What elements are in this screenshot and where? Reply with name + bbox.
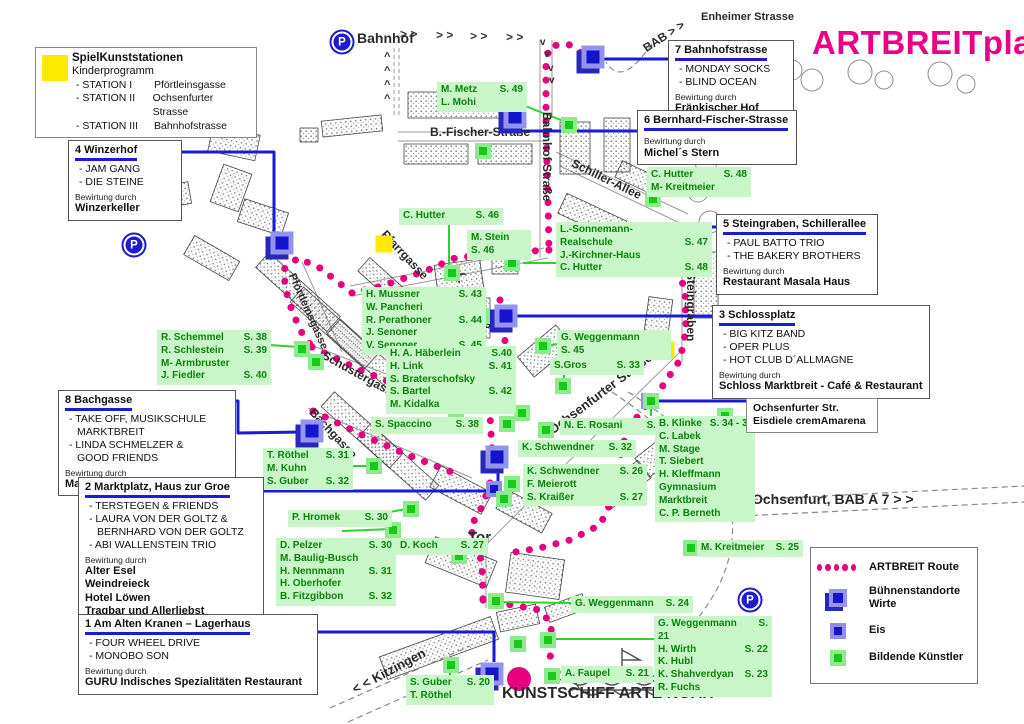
- artist-line: Marktbreit: [659, 495, 751, 508]
- act-name: - JAM GANG: [75, 163, 175, 176]
- artist-line: S. KraißerS. 27: [527, 492, 643, 505]
- artist-page-ref: S. 32: [369, 591, 392, 604]
- stations-title-rest: Kinderprogramm: [72, 65, 154, 77]
- artist-line: R. Fuchs: [658, 682, 768, 695]
- act-name: - TAKE OFF, MUSIKSCHULE: [65, 413, 229, 426]
- host-name: Alter Esel: [85, 565, 257, 578]
- artist-line: S.GrosS. 33: [554, 360, 640, 373]
- stations-title-bold: SpielKunststationen: [72, 52, 183, 64]
- artist-name: M- Kreitmeier: [651, 182, 715, 195]
- artist-label: R. SchemmelS. 38R. SchlesteinS. 39M- Arm…: [157, 330, 271, 385]
- artist-name: H. Kleffmann: [659, 469, 721, 482]
- artist-line: H. WirthS. 22: [658, 644, 768, 657]
- artist-name: P. Hromek: [292, 512, 340, 525]
- artist-line: G. WeggenmannS.: [658, 618, 768, 631]
- arrow-glyph: > >: [470, 30, 487, 42]
- artist-name: M. Stein: [471, 232, 509, 245]
- act-name: - TERSTEGEN & FRIENDS: [85, 500, 257, 513]
- artist-page-ref: S. 27: [620, 492, 643, 505]
- station-marker: [376, 236, 393, 253]
- act-name: - HOT CLUB D´ALLMAGNE: [719, 354, 923, 367]
- legend-route-label: ARTBREIT Route: [869, 561, 959, 574]
- arrow-glyph: ^: [384, 94, 390, 105]
- artist-name: J. Senoner: [366, 327, 417, 340]
- artist-name: R. Perathoner: [366, 315, 432, 328]
- artist-line: H. NennmannS. 31: [280, 566, 392, 579]
- station-yellow-icon: [42, 55, 68, 81]
- artist-line: D. KochS. 27: [400, 540, 484, 553]
- artist-line: L. Mohi: [441, 97, 523, 110]
- stations-title: SpielKunststationen Kinderprogramm: [72, 51, 250, 79]
- artist-page-ref: S. 43: [459, 289, 482, 302]
- artist-page-ref: S. 20: [467, 677, 490, 690]
- act-name: - BIG KITZ BAND: [719, 328, 923, 341]
- street-label: Steingraben: [685, 272, 697, 341]
- arrow-glyph: v: [540, 38, 546, 48]
- bewirtung-label: Bewirtung durch: [719, 370, 923, 380]
- artist-name: M. Kuhn: [267, 463, 306, 476]
- eis-marker-icon: [817, 623, 859, 639]
- artist-marker: [496, 491, 512, 507]
- artist-line: M- Kreitmeier: [651, 182, 747, 195]
- arrow-glyph: > >: [436, 29, 453, 41]
- artist-page-ref: S. 41: [489, 361, 512, 374]
- act-name: - THE BAKERY BROTHERS: [723, 250, 871, 263]
- artist-name: K. Schwendner: [522, 442, 594, 455]
- act-name: MARKTBREIT: [65, 426, 229, 439]
- artist-name: M. Baulig-Busch: [280, 553, 358, 566]
- artist-line: J.-Kirchner-Haus: [560, 250, 708, 263]
- artist-line: S. BartelS. 42: [390, 386, 512, 399]
- bewirtung-label: Bewirtung durch: [644, 136, 790, 146]
- artist-page-ref: S. 48: [685, 262, 708, 275]
- artist-line: S. GuberS. 20: [410, 677, 490, 690]
- info-box-title: 3 Schlossplatz: [719, 309, 795, 326]
- artist-name: S. Kraißer: [527, 492, 574, 505]
- artist-page-ref: S. 21: [626, 668, 649, 681]
- artist-name: S. 45: [561, 345, 584, 358]
- artist-page-ref: S. 38: [244, 332, 267, 345]
- artist-marker: [514, 405, 530, 421]
- artist-marker: [555, 378, 571, 394]
- stage-marker: [486, 446, 509, 469]
- artist-page-ref: S. 30: [365, 512, 388, 525]
- artist-label: C. HutterS. 46: [399, 208, 503, 225]
- artist-marker: [366, 458, 382, 474]
- artist-name: C. Hutter: [560, 262, 602, 275]
- arrow-glyph: v: [544, 50, 550, 60]
- artist-line: H. MussnerS. 43: [366, 289, 482, 302]
- artist-marker: [475, 143, 491, 159]
- artist-name: L. Mohi: [441, 97, 476, 110]
- artist-line: A. FaupelS. 21: [565, 668, 649, 681]
- artist-page-ref: S. 49: [500, 84, 523, 97]
- artist-name: A. Faupel: [565, 668, 610, 681]
- artist-line: M. Kuhn: [267, 463, 349, 476]
- green-connector-line: [497, 602, 571, 603]
- artist-page-ref: S. 44: [459, 315, 482, 328]
- info-box-5: 5 Steingraben, Schillerallee- PAUL BATTO…: [716, 214, 878, 295]
- page-title: ARTBREITplan: [812, 24, 1024, 62]
- artist-line: RealschuleS. 47: [560, 237, 708, 250]
- artist-label: M. SteinS. 46: [467, 230, 531, 260]
- artist-marker: [499, 416, 515, 432]
- arrow-glyph: > >: [400, 28, 417, 40]
- stage-marker: [301, 420, 324, 443]
- info-box-4: 4 Winzerhof- JAM GANG- DIE STEINEBewirtu…: [68, 140, 182, 221]
- artist-name: H. Mussner: [366, 289, 420, 302]
- artist-name: C. Hutter: [403, 210, 445, 223]
- artist-name: H. Oberhofer: [280, 578, 341, 591]
- artist-page-ref: S. 38: [456, 419, 479, 432]
- artist-line: K. Hubl: [658, 656, 768, 669]
- artist-page-ref: S. 47: [685, 237, 708, 250]
- artist-line: R. SchlesteinS. 39: [161, 345, 267, 358]
- artist-label: D. KochS. 27: [396, 538, 488, 555]
- artist-line: G. Weggenmann: [561, 332, 667, 345]
- info-box-title: 4 Winzerhof: [75, 144, 137, 161]
- artist-marker: [544, 668, 560, 684]
- artist-line: K. ShahverdyanS. 23: [658, 669, 768, 682]
- info-box-6: 6 Bernhard-Fischer-StrasseBewirtung durc…: [637, 110, 797, 165]
- artist-line: 21: [658, 631, 768, 644]
- artist-line: S. SpaccinoS. 38: [375, 419, 479, 432]
- act-name: GOOD FRIENDS: [65, 452, 229, 465]
- artist-marker-icon: [817, 650, 859, 666]
- act-name: - MONOBO SON: [85, 650, 311, 663]
- street-label: Bahnhof Straße: [541, 112, 553, 201]
- artist-name: S. Guber: [267, 476, 309, 489]
- act-name: - LAURA VON DER GOLTZ &: [85, 513, 257, 526]
- blue-connector-line: [517, 124, 637, 131]
- stage-marker: [582, 46, 605, 69]
- artist-name: D. Pelzer: [280, 540, 322, 553]
- artist-name: G. Weggenmann: [561, 332, 640, 345]
- artist-label: C. HutterS. 48M- Kreitmeier: [647, 167, 751, 197]
- artist-marker: [488, 593, 504, 609]
- station-row: - STATION IIOchsenfurter Strasse: [76, 92, 250, 119]
- act-name: BERNHARD VON DER GOLTZ: [85, 526, 257, 539]
- artist-line: C. HutterS. 46: [403, 210, 499, 223]
- info-box-1: 1 Am Alten Kranen – Lagerhaus- FOUR WHEE…: [78, 614, 318, 695]
- bewirtung-label: Bewirtung durch: [675, 92, 787, 102]
- artist-line: B. FitzgibbonS. 32: [280, 591, 392, 604]
- artist-line: G. WeggenmannS. 24: [575, 598, 689, 611]
- artist-label: S. SpaccinoS. 38: [371, 417, 483, 434]
- parking-icon: P: [332, 32, 353, 53]
- stations-legend-box: SpielKunststationen Kinderprogramm - STA…: [35, 47, 257, 138]
- artist-label: A. FaupelS. 21: [561, 666, 653, 683]
- arrow-glyph: > >: [506, 31, 523, 43]
- artist-name: M. Kidalka: [390, 399, 439, 412]
- host-name: Hotel Löwen: [85, 592, 257, 605]
- artist-line: K. SchwendnerS. 32: [522, 442, 632, 455]
- artist-marker: [444, 265, 460, 281]
- artist-page-ref: S. 31: [326, 450, 349, 463]
- artist-page-ref: S. 30: [369, 540, 392, 553]
- bewirtung-label: Bewirtung durch: [85, 555, 257, 565]
- artist-page-ref: S.: [759, 618, 768, 631]
- artist-line: M. KreitmeierS. 25: [701, 542, 799, 555]
- artist-line: S. 45: [561, 345, 667, 358]
- artist-label: K. SchwendnerS. 26F. MeierottS. KraißerS…: [523, 464, 647, 506]
- artist-name: R. Schlestein: [161, 345, 224, 358]
- artist-line: S. 46: [471, 245, 527, 258]
- legend-route-row: ARTBREIT Route: [817, 561, 971, 574]
- artist-label: B. KlinkeS. 34 - 37C. LabekM. StageT. Si…: [655, 416, 755, 522]
- artist-name: Marktbreit: [659, 495, 707, 508]
- act-name: - ABI WALLENSTEIN TRIO: [85, 539, 257, 552]
- street-label: Ochsenfurt, BAB A 7 > >: [752, 492, 914, 506]
- artist-name: H. Nennmann: [280, 566, 344, 579]
- artist-name: C. Hutter: [651, 169, 693, 182]
- artist-name: T. Röthel: [410, 690, 452, 703]
- artist-line: D. PelzerS. 30: [280, 540, 392, 553]
- artist-line: T. Siebert: [659, 456, 751, 469]
- artist-marker: [561, 117, 577, 133]
- artist-page-ref: S. 22: [745, 644, 768, 657]
- artist-page-ref: S.40: [491, 348, 512, 361]
- artist-page-ref: S. 33: [617, 360, 640, 373]
- artist-line: H. Kleffmann: [659, 469, 751, 482]
- artist-name: M. Kreitmeier: [701, 542, 764, 555]
- artist-line: C. HutterS. 48: [560, 262, 708, 275]
- host-name: Weindreieck: [85, 578, 257, 591]
- artist-line: R. PerathonerS. 44: [366, 315, 482, 328]
- artist-page-ref: S. 42: [489, 386, 512, 399]
- artist-line: K. SchwendnerS. 26: [527, 466, 643, 479]
- artist-line: M- Armbruster: [161, 358, 267, 371]
- artist-line: R. SchemmelS. 38: [161, 332, 267, 345]
- artist-label: G. WeggenmannS.21H. WirthS. 22K. HublK. …: [654, 616, 772, 697]
- artist-name: B. Klinke: [659, 418, 702, 431]
- arrow-glyph: v: [549, 76, 555, 86]
- artist-page-ref: S. 25: [776, 542, 799, 555]
- artist-name: D. Koch: [400, 540, 438, 553]
- stage-marker-icon: [817, 589, 859, 607]
- artist-name: M- Armbruster: [161, 358, 230, 371]
- artist-name: J. Fiedler: [161, 370, 205, 383]
- artist-label: K. SchwendnerS. 32: [518, 440, 636, 457]
- artist-line: M. Stein: [471, 232, 527, 245]
- parking-icon: P: [740, 590, 761, 611]
- artist-name: R. Schemmel: [161, 332, 224, 345]
- artist-name: S. Bartel: [390, 386, 431, 399]
- host-name: Winzerkeller: [75, 202, 175, 215]
- artist-line: L.-Sonnemann-: [560, 224, 708, 237]
- artist-line: C. Labek: [659, 431, 751, 444]
- artist-page-ref: S. 48: [724, 169, 747, 182]
- artist-label: G. WeggenmannS. 45: [557, 330, 671, 360]
- artist-name: S. Guber: [410, 677, 452, 690]
- stage-marker: [271, 232, 294, 255]
- artist-page-ref: S. 27: [461, 540, 484, 553]
- parking-icon: P: [124, 235, 145, 256]
- street-label: Enheimer Strasse: [701, 12, 794, 23]
- artist-page-ref: S. 40: [244, 370, 267, 383]
- artist-line: F. Meierott: [527, 479, 643, 492]
- artist-line: C. P. Berneth: [659, 508, 751, 521]
- artist-name: J.-Kirchner-Haus: [560, 250, 641, 263]
- artist-marker: [540, 632, 556, 648]
- artist-name: C. Labek: [659, 431, 701, 444]
- artist-line: J. Senoner: [366, 327, 482, 340]
- artist-name: Gymnasium: [659, 482, 716, 495]
- station-row-cell: - STATION II: [76, 92, 153, 119]
- legend-eis-label: Eis: [869, 624, 886, 637]
- act-name: - MONDAY SOCKS: [675, 63, 787, 76]
- act-name: - BLIND OCEAN: [675, 76, 787, 89]
- artist-line: C. HutterS. 48: [651, 169, 747, 182]
- artist-line: S. Braterschofsky: [390, 374, 512, 387]
- artist-line: H. Oberhofer: [280, 578, 392, 591]
- artist-name: T. Siebert: [659, 456, 703, 469]
- artist-line: Gymnasium: [659, 482, 751, 495]
- artist-name: B. Fitzgibbon: [280, 591, 343, 604]
- artist-marker: [538, 422, 554, 438]
- artist-label: G. WeggenmannS. 24: [571, 596, 693, 613]
- artist-name: W. Pancheri: [366, 302, 423, 315]
- artist-label: S.GrosS. 33: [550, 358, 644, 375]
- host-name: Schloss Marktbreit - Café & Restaurant: [719, 380, 923, 393]
- artist-name: 21: [658, 631, 669, 644]
- bewirtung-label: Bewirtung durch: [723, 266, 871, 276]
- host-name: GURU Indisches Spezialitäten Restaurant: [85, 676, 311, 689]
- artist-name: L.-Sonnemann-: [560, 224, 633, 237]
- artist-label: H. A. HäberleinS.40H. LinkS. 41S. Brater…: [386, 346, 516, 414]
- info-box-title: 1 Am Alten Kranen – Lagerhaus: [85, 618, 250, 635]
- bewirtung-label: Bewirtung durch: [75, 192, 175, 202]
- artist-name: S.Gros: [554, 360, 587, 373]
- artist-label: P. HromekS. 30: [288, 510, 392, 527]
- artist-name: S. Braterschofsky: [390, 374, 475, 387]
- artist-label: M. MetzS. 49L. Mohi: [437, 82, 527, 112]
- artist-page-ref: S. 31: [369, 566, 392, 579]
- artist-line: H. A. HäberleinS.40: [390, 348, 512, 361]
- artist-label: D. PelzerS. 30M. Baulig-BuschH. Nennmann…: [276, 538, 396, 606]
- artist-line: B. KlinkeS. 34 - 37: [659, 418, 751, 431]
- artist-page-ref: S. 32: [609, 442, 632, 455]
- artist-name: C. P. Berneth: [659, 508, 721, 521]
- info-box-title: 7 Bahnhofstrasse: [675, 44, 767, 61]
- artist-name: K. Shahverdyan: [658, 669, 734, 682]
- station-row-cell: - STATION I: [76, 79, 154, 93]
- artist-marker: [403, 501, 419, 517]
- artist-name: H. A. Häberlein: [390, 348, 461, 361]
- station-row-cell: Ochsenfurter Strasse: [153, 92, 250, 119]
- info-box-title: 6 Bernhard-Fischer-Strasse: [644, 114, 788, 131]
- info-box-2: 2 Marktplatz, Haus zur Groe- TERSTEGEN &…: [78, 477, 264, 624]
- host-name: Michel´s Stern: [644, 147, 790, 160]
- artist-page-ref: S. 32: [326, 476, 349, 489]
- arrow-glyph: v: [548, 64, 554, 74]
- bewirtung-label: Bewirtung durch: [85, 666, 311, 676]
- artist-line: T. RöthelS. 31: [267, 450, 349, 463]
- artist-name: F. Meierott: [527, 479, 576, 492]
- artist-line: M. MetzS. 49: [441, 84, 523, 97]
- station-row: - STATION IPförtleinsgasse: [76, 79, 250, 93]
- artist-name: G. Weggenmann: [575, 598, 654, 611]
- legend-stage-label: Bühnenstandorte Wirte: [869, 585, 960, 611]
- stations-rows: - STATION IPförtleinsgasse- STATION IIOc…: [42, 79, 250, 134]
- artist-line: M. Kidalka: [390, 399, 512, 412]
- legend-stage-row: Bühnenstandorte Wirte: [817, 585, 971, 611]
- legend-eis-row: Eis: [817, 623, 971, 639]
- artist-marker: [504, 476, 520, 492]
- station-row-cell: - STATION III: [76, 120, 154, 134]
- artist-name: S. 46: [471, 245, 494, 258]
- artist-marker: [643, 393, 659, 409]
- artist-marker: [443, 657, 459, 673]
- artist-page-ref: S. 24: [666, 598, 689, 611]
- artist-line: H. LinkS. 41: [390, 361, 512, 374]
- artist-name: M. Stage: [659, 444, 700, 457]
- artist-line: T. Röthel: [410, 690, 490, 703]
- act-name: - DIE STEINE: [75, 176, 175, 189]
- station-row-cell: Bahnhofstrasse: [154, 120, 227, 134]
- arrow-glyph: ^: [384, 66, 390, 77]
- legend-artist-label: Bildende Künstler: [869, 651, 963, 664]
- artist-name: H. Wirth: [658, 644, 696, 657]
- artist-name: R. Fuchs: [658, 682, 700, 695]
- arrow-glyph: ^: [384, 52, 390, 63]
- artist-page-ref: S. 23: [745, 669, 768, 682]
- artist-label: M. KreitmeierS. 25: [697, 540, 803, 557]
- route-dots-icon: [817, 564, 859, 571]
- artist-page-ref: S. 26: [620, 466, 643, 479]
- stage-marker: [495, 305, 518, 328]
- artist-label: H. MussnerS. 43W. PancheriR. PerathonerS…: [362, 287, 486, 355]
- act-name: - LINDA SCHMELZER &: [65, 439, 229, 452]
- artist-marker: [535, 338, 551, 354]
- act-name: - OPER PLUS: [719, 341, 923, 354]
- station-row-cell: Pförtleinsgasse: [154, 79, 226, 93]
- eisdiele-box: Ochsenfurter Str.Eisdiele cremAmarena: [746, 398, 878, 433]
- eisdiele-line: Eisdiele cremAmarena: [753, 415, 871, 428]
- eisdiele-line: Ochsenfurter Str.: [753, 402, 871, 415]
- artist-line: M. Baulig-Busch: [280, 553, 392, 566]
- artist-line: M. Stage: [659, 444, 751, 457]
- station-row: - STATION IIIBahnhofstrasse: [76, 120, 250, 134]
- artist-name: S. Spaccino: [375, 419, 432, 432]
- info-box-7: 7 Bahnhofstrasse- MONDAY SOCKS- BLIND OC…: [668, 40, 794, 121]
- artist-line: W. Pancheri: [366, 302, 482, 315]
- artist-name: K. Schwendner: [527, 466, 599, 479]
- act-name: - FOUR WHEEL DRIVE: [85, 637, 311, 650]
- artist-name: N. E. Rosani: [564, 420, 622, 433]
- artist-line: S. GuberS. 32: [267, 476, 349, 489]
- info-box-title: 2 Marktplatz, Haus zur Groe: [85, 481, 230, 498]
- map-legend-box: ARTBREIT Route Bühnenstandorte Wirte Eis…: [810, 547, 978, 684]
- artist-name: H. Link: [390, 361, 423, 374]
- legend-artist-row: Bildende Künstler: [817, 650, 971, 666]
- artist-name: T. Röthel: [267, 450, 309, 463]
- artist-page-ref: S. 46: [476, 210, 499, 223]
- artist-line: P. HromekS. 30: [292, 512, 388, 525]
- artist-line: J. FiedlerS. 40: [161, 370, 267, 383]
- artist-name: M. Metz: [441, 84, 477, 97]
- artist-name: Realschule: [560, 237, 613, 250]
- artist-marker: [510, 636, 526, 652]
- info-box-3: 3 Schlossplatz- BIG KITZ BAND- OPER PLUS…: [712, 305, 930, 399]
- act-name: - PAUL BATTO TRIO: [723, 237, 871, 250]
- artbreit-map: ARTBREITplan SpielKunststationen Kinderp…: [0, 0, 1024, 724]
- info-box-title: 8 Bachgasse: [65, 394, 132, 411]
- green-connector-line: [342, 529, 390, 531]
- artist-name: G. Weggenmann: [658, 618, 737, 631]
- artist-label: S. GuberS. 20T. Röthel: [406, 675, 494, 705]
- artist-marker: [308, 354, 324, 370]
